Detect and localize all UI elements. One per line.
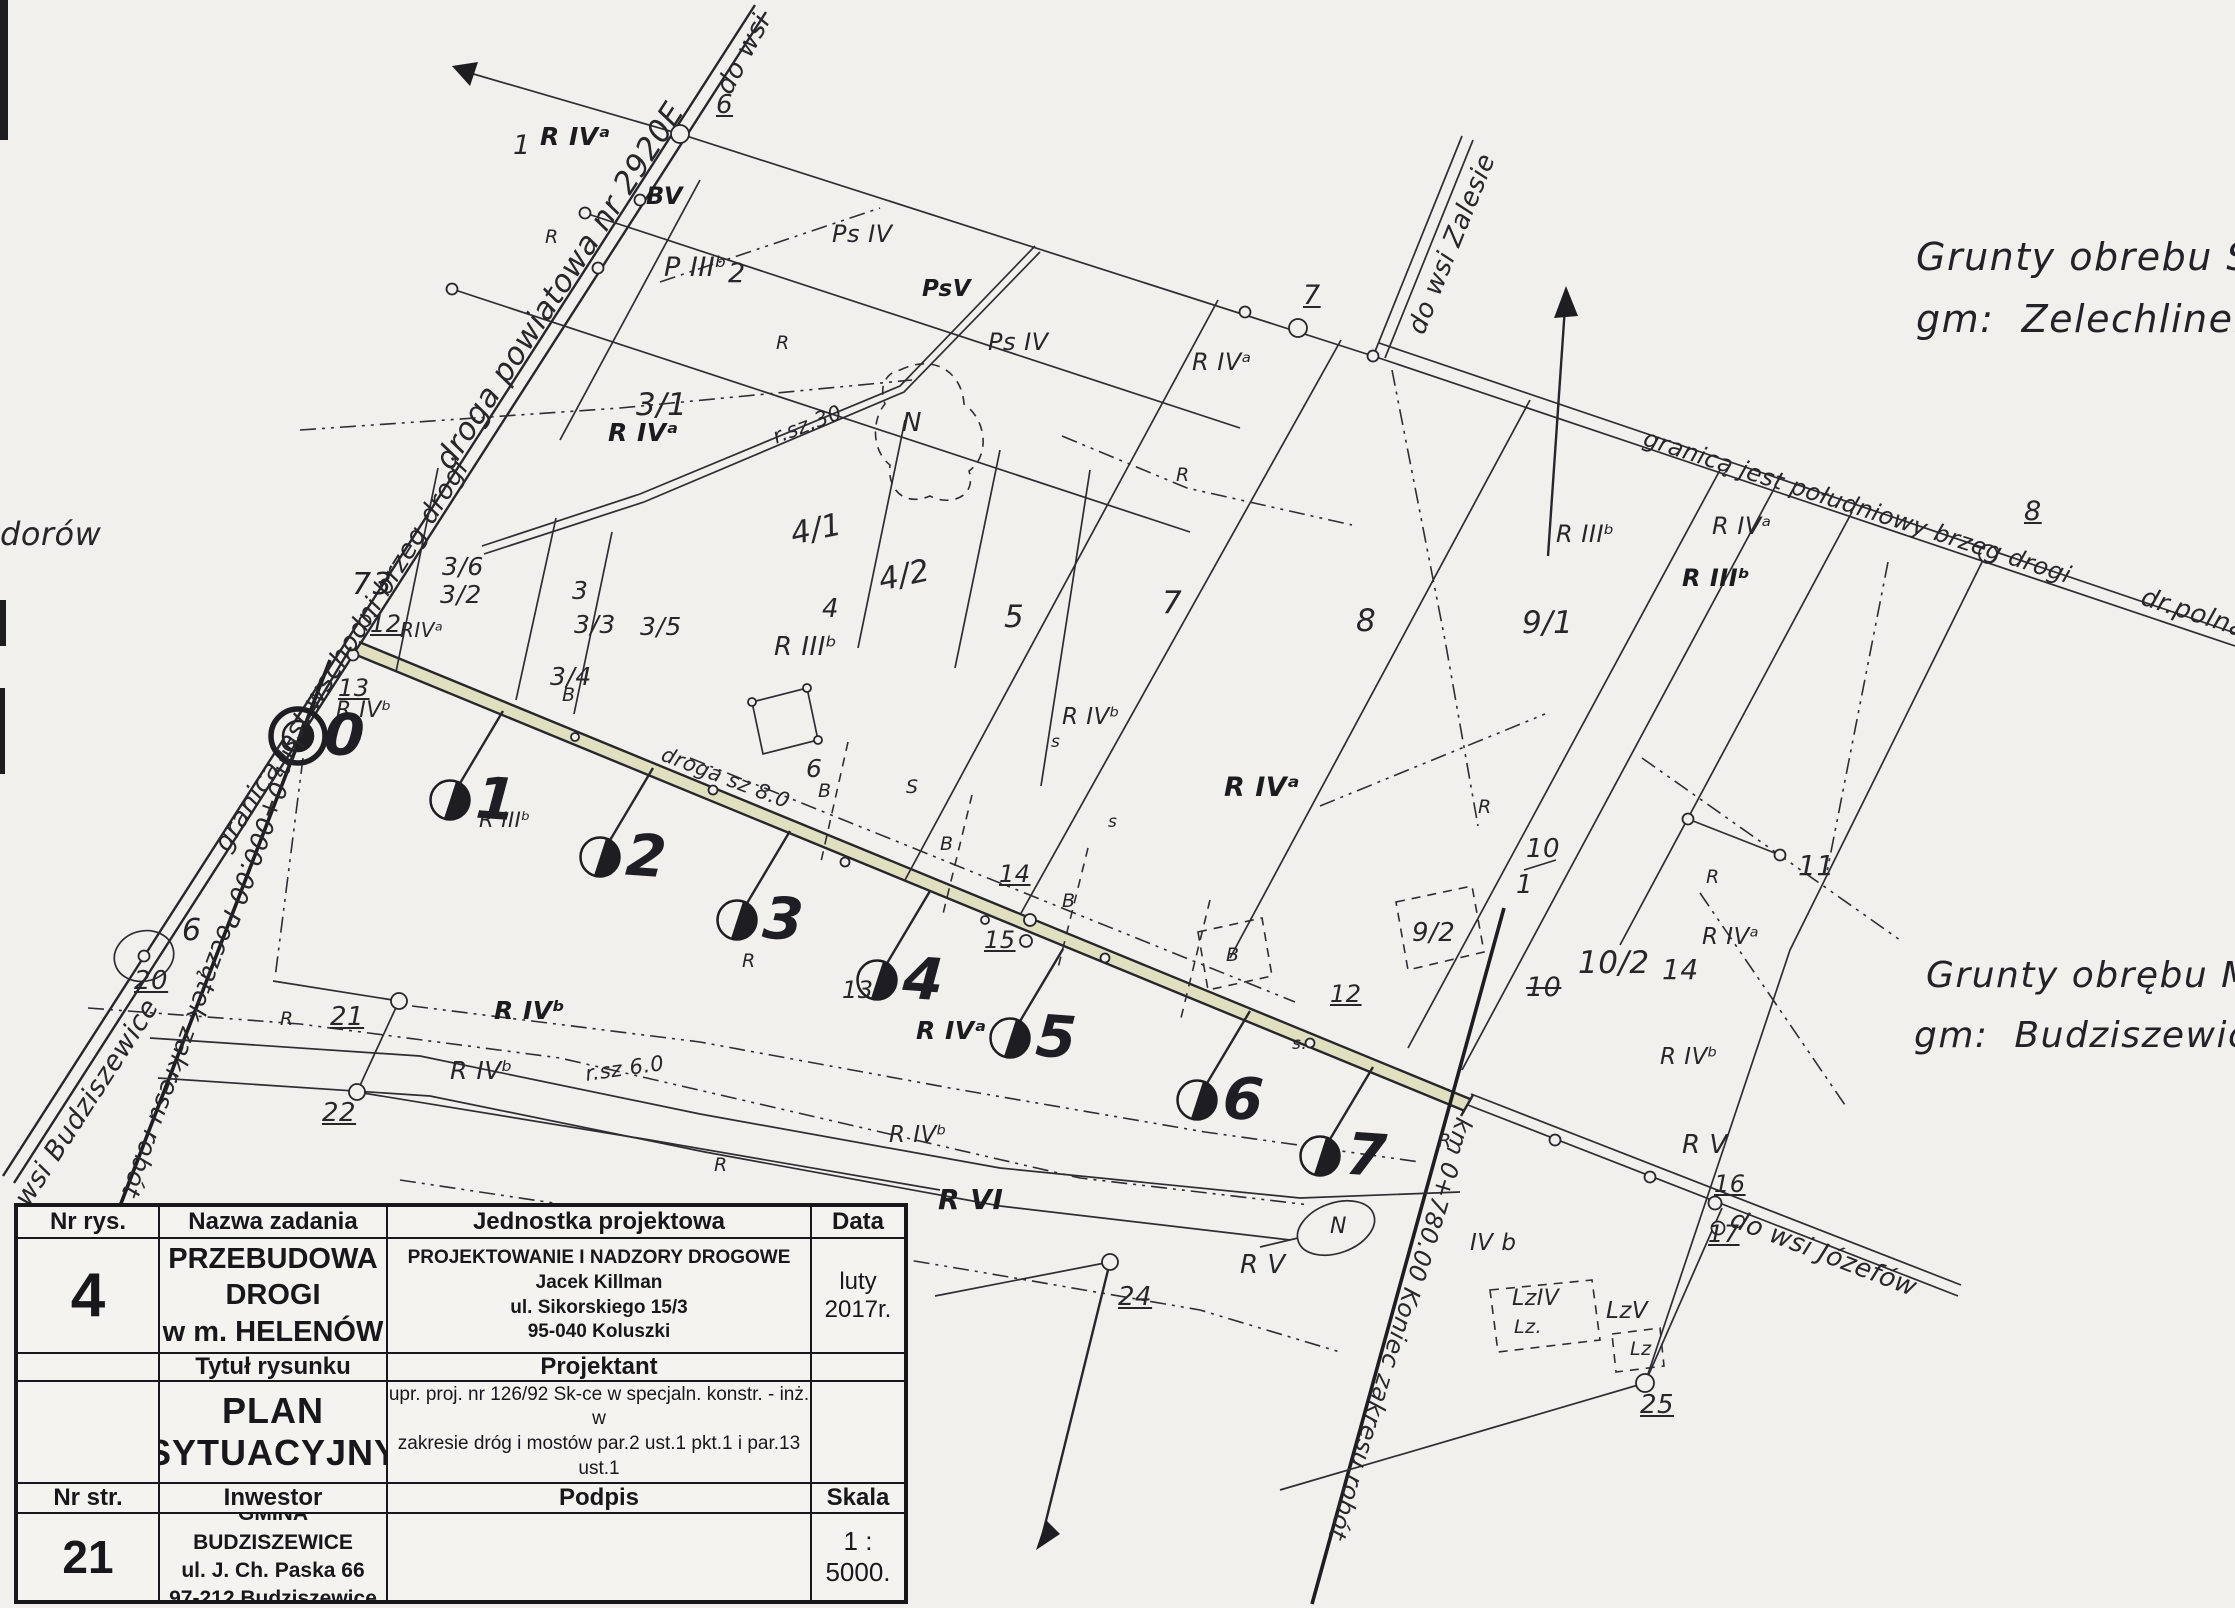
map-label: 3/2	[440, 582, 482, 607]
signature-cell	[386, 1512, 812, 1602]
title-block-header-skala: Skala	[810, 1482, 906, 1514]
map-label: R V	[1240, 1252, 1286, 1278]
map-label: 6	[182, 916, 203, 946]
map-label: R IVᵃ	[1192, 350, 1252, 374]
map-label: 7	[1162, 588, 1182, 619]
map-label: 8	[2024, 498, 2042, 525]
map-label: R IVᵃ	[1224, 774, 1300, 801]
map-label: 14	[999, 862, 1031, 886]
map-label: 17	[1708, 1222, 1740, 1246]
map-label: 7	[1303, 282, 1321, 309]
map-label: R IVᵇ	[1660, 1046, 1718, 1069]
map-label: 13	[338, 676, 370, 700]
map-label: R	[776, 334, 790, 353]
design-unit-line: 95-040 Koluszki	[528, 1320, 671, 1345]
empty-cell	[16, 1380, 160, 1484]
station-number: 1	[474, 769, 518, 830]
design-unit-line: Jacek Killman	[536, 1271, 663, 1296]
map-label: LzIV	[1512, 1288, 1559, 1310]
drawing-number: 4	[16, 1237, 160, 1354]
map-label: 10	[1526, 974, 1561, 1001]
map-label: 16	[1714, 1172, 1746, 1196]
map-label: R IVᵇ	[1062, 706, 1120, 729]
survey-nodes	[139, 125, 1998, 1392]
map-label: 5	[1004, 602, 1024, 633]
investor-info: GMINA BUDZISZEWICE ul. J. Ch. Paska 66 9…	[158, 1512, 388, 1602]
designer-line: upr. proj. nr 126/92 Sk-ce w specjaln. k…	[388, 1383, 810, 1432]
map-label: 4	[822, 596, 839, 622]
map-label: 2	[728, 260, 746, 287]
map-label: Grunty obrębu Mie	[1926, 958, 2235, 994]
task-name-line2: w m. HELENÓW	[163, 1314, 384, 1350]
map-label: Lz	[1630, 1340, 1652, 1359]
north-arrow-icon	[1548, 286, 1578, 556]
drawing-title: PLAN SYTUACYJNY	[158, 1380, 388, 1484]
drawing-date: luty 2017r.	[810, 1237, 906, 1354]
map-label: 3/1	[636, 390, 687, 421]
map-label: LzV	[1606, 1300, 1648, 1323]
design-unit: PROJEKTOWANIE I NADZORY DROGOWE Jacek Ki…	[386, 1237, 812, 1354]
task-name: PRZEBUDOWA DROGI w m. HELENÓW	[158, 1237, 388, 1354]
map-label: 10	[1526, 836, 1560, 862]
map-label: N	[902, 410, 922, 436]
page-number: 21	[16, 1512, 160, 1602]
title-block-header-nr-rys: Nr rys.	[16, 1205, 160, 1239]
station-number: 6	[1221, 1069, 1265, 1130]
title-block-header-tytul: Tytuł rysunku	[158, 1352, 388, 1382]
map-label: 73	[352, 570, 393, 600]
map-label: R	[1478, 798, 1492, 817]
station-markers	[271, 647, 1373, 1181]
map-label: 21	[330, 1004, 364, 1030]
map-label: 3	[572, 578, 588, 603]
map-label: S	[906, 778, 919, 797]
map-label: R IVᵇ	[494, 998, 565, 1023]
map-label: 13	[842, 978, 874, 1002]
map-label: 14	[1662, 956, 1699, 984]
map-label: R IVᵃ	[1712, 514, 1772, 538]
empty-cell	[810, 1352, 906, 1382]
investor-line: GMINA BUDZISZEWICE	[160, 1512, 386, 1557]
map-label: B	[562, 686, 576, 705]
title-block-header-podpis: Podpis	[386, 1482, 812, 1514]
map-label: R	[714, 1156, 728, 1175]
map-label: R IIIᵇ	[1556, 522, 1615, 546]
map-label: 12	[1330, 982, 1362, 1006]
landuse-boundaries	[88, 208, 1900, 1352]
map-label: R	[1176, 466, 1190, 485]
title-block-header-data: Data	[810, 1205, 906, 1239]
title-block-header-nazwa: Nazwa zadania	[158, 1205, 388, 1239]
map-label: R IIIᵇ	[774, 634, 837, 660]
investor-line: ul. J. Ch. Paska 66	[181, 1557, 364, 1585]
map-label: R V	[1682, 1132, 1728, 1158]
map-label: Grunty obrebu Świnio	[1916, 238, 2235, 276]
title-block-header-inwestor: Inwestor	[158, 1482, 388, 1514]
point24-arrow	[1036, 1262, 1110, 1550]
drawing-scale: 1 : 5000.	[810, 1512, 906, 1602]
design-unit-line: ul. Sikorskiego 15/3	[510, 1296, 687, 1321]
task-name-line1: PRZEBUDOWA DROGI	[160, 1241, 386, 1314]
map-label: s	[1051, 734, 1060, 751]
map-label: PsV	[922, 278, 971, 301]
map-label: B	[940, 835, 954, 854]
map-label: 3/3	[574, 612, 616, 637]
map-label: R IIIᵇ	[1682, 566, 1750, 590]
station-number: 2	[624, 826, 668, 887]
map-label: R	[1706, 868, 1720, 887]
map-label: 12	[370, 612, 402, 636]
map-label: s	[1108, 814, 1117, 831]
map-label: 6	[716, 92, 733, 118]
map-label: 3/6	[442, 554, 484, 579]
map-label: N	[1330, 1216, 1347, 1238]
station-number: 4	[901, 949, 945, 1010]
map-canvas: do wsi6droga powiatowa nr 2920Egranicą j…	[0, 0, 2235, 1608]
station-number: 5	[1034, 1007, 1078, 1068]
map-label: 9/2	[1412, 920, 1455, 946]
map-label: R	[742, 952, 756, 971]
map-label: 3/5	[640, 614, 682, 639]
north-boundary-road	[452, 62, 2235, 646]
map-label: P IIIᵇ	[664, 254, 727, 281]
map-label: Ps IV	[988, 330, 1049, 354]
map-label: R IVᵃ	[916, 1018, 987, 1043]
map-label: 20	[134, 968, 168, 994]
map-label: 8	[1356, 606, 1376, 637]
map-label: 6	[806, 756, 822, 781]
station-number: 3	[761, 889, 805, 950]
empty-cell	[16, 1352, 160, 1382]
map-label: RIVᵃ	[400, 620, 443, 640]
map-label: 25	[1640, 1392, 1674, 1418]
map-label: 22	[322, 1100, 356, 1126]
designer-line: zakresie dróg i mostów par.2 ust.1 pkt.1…	[388, 1432, 810, 1481]
map-label: 10/2	[1578, 948, 1650, 979]
scan-artifacts	[0, 0, 8, 774]
map-label: R	[280, 1010, 294, 1029]
map-label: gm: Zelechlinek	[1916, 300, 2235, 338]
design-unit-line: PROJEKTOWANIE I NADZORY DROGOWE	[408, 1246, 791, 1271]
map-label: Ps IV	[832, 222, 893, 246]
map-label: R VI	[938, 1186, 1003, 1214]
map-label: B	[818, 782, 832, 801]
map-label: R IVᵇ	[889, 1124, 947, 1147]
map-label: dorów	[0, 518, 101, 550]
map-label: R	[545, 228, 559, 247]
title-block: Nr rys. Nazwa zadania Jednostka projekto…	[14, 1203, 908, 1604]
investor-line: 97-212 Budziszewice	[169, 1585, 377, 1602]
station-number: 0	[322, 705, 366, 766]
map-label: 9/1	[1522, 608, 1573, 639]
map-label: IV b	[1470, 1232, 1516, 1255]
map-label: 11	[1798, 852, 1835, 880]
map-label: 1	[1516, 872, 1533, 898]
map-label: BV	[646, 184, 683, 208]
title-block-header-nr-str: Nr str.	[16, 1482, 160, 1514]
map-label: gm: Budziszewice	[1914, 1018, 2235, 1054]
map-label: 1	[513, 132, 531, 159]
map-label: 15	[984, 928, 1016, 952]
designer-info: mgr inż. Jacek Killman upr. proj. nr 126…	[386, 1380, 812, 1484]
title-block-header-jednostka: Jednostka projektowa	[386, 1205, 812, 1239]
map-label: s.	[1292, 1036, 1307, 1053]
empty-cell	[810, 1380, 906, 1484]
map-label: 24	[1118, 1284, 1152, 1310]
map-label: R IVᵃ	[1702, 926, 1759, 949]
title-block-header-projektant: Projektant	[386, 1352, 812, 1382]
map-label: B	[1062, 892, 1076, 911]
map-label: R IVᵃ	[608, 420, 679, 445]
map-label: Lz.	[1514, 1318, 1542, 1337]
map-label: R	[1438, 1132, 1452, 1151]
map-label: R IVᵃ	[540, 124, 611, 149]
map-label: R IVᵇ	[450, 1058, 513, 1083]
map-label: B	[1226, 946, 1240, 965]
station-number: 7	[1344, 1125, 1388, 1186]
